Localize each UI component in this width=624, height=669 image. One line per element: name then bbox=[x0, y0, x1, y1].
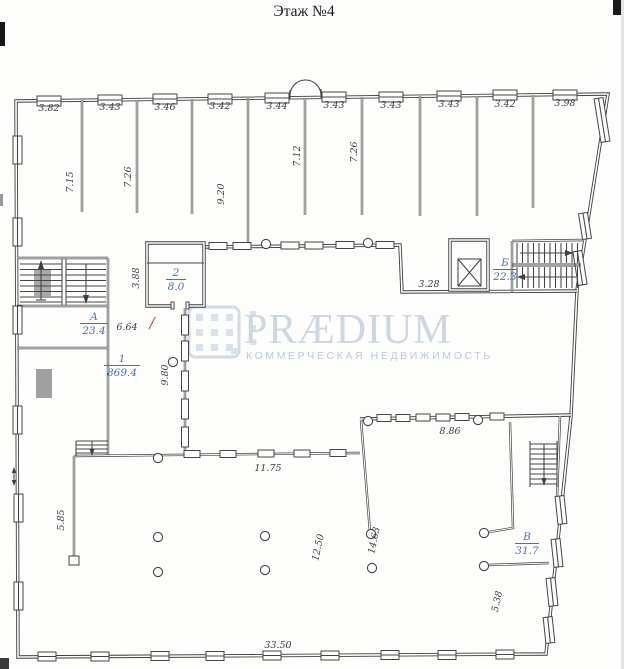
svg-text:23.4: 23.4 bbox=[81, 325, 105, 337]
page-title: Этаж №4 bbox=[273, 3, 334, 20]
building-outline bbox=[16, 80, 608, 657]
dim-depth-4: 7.26 bbox=[349, 141, 360, 162]
dim-west-hall-depth: 9.80 bbox=[160, 364, 171, 385]
dimension-labels: 3.82 3.43 3.46 3.42 3.44 3.43 3.43 3.43 … bbox=[12, 98, 576, 651]
dim-open-span-a: 12.50 bbox=[310, 533, 326, 562]
watermark-praedium: PRÆDIUM КОММЕРЧЕСКАЯ НЕДВИЖИМОСТЬ bbox=[189, 307, 493, 362]
bottom-wall-windows bbox=[38, 650, 514, 661]
dim-top-3: 3.42 bbox=[209, 101, 230, 112]
top-wall-arc bbox=[290, 80, 321, 96]
room-area-labels: 1 869.4 2 8.0 А 23.4 Б 22.3 В 31.7 / bbox=[80, 257, 539, 557]
dim-top-7: 3.43 bbox=[438, 99, 459, 110]
svg-text:31.7: 31.7 bbox=[515, 545, 539, 557]
floor-plan-svg: PRÆDIUM КОММЕРЧЕСКАЯ НЕДВИЖИМОСТЬ bbox=[0, 0, 624, 669]
dim-closet-width: 3.88 bbox=[131, 267, 142, 288]
dim-south-wall: 11.75 bbox=[254, 463, 281, 474]
wall-pier bbox=[34, 270, 51, 296]
dim-top-8: 3.42 bbox=[494, 99, 515, 110]
svg-text:8.0: 8.0 bbox=[168, 281, 185, 293]
room-label-2: 2 8.0 bbox=[166, 267, 186, 293]
red-check-mark: / bbox=[147, 314, 156, 332]
svg-text:1: 1 bbox=[119, 353, 126, 365]
dim-top-5: 3.43 bbox=[323, 100, 344, 111]
room-label-a: А 23.4 bbox=[80, 311, 108, 337]
top-rooms-partitions bbox=[82, 95, 533, 247]
windows bbox=[13, 90, 610, 661]
dim-top-0: 3.82 bbox=[38, 103, 59, 114]
svg-text:2: 2 bbox=[172, 267, 180, 279]
wall-end-cap bbox=[69, 556, 79, 565]
dim-depth-3: 7.12 bbox=[292, 145, 303, 166]
dim-depth-2: 9.20 bbox=[216, 183, 227, 204]
dim-bottom-total: 33.50 bbox=[264, 640, 291, 651]
dim-lift-span: 3.28 bbox=[418, 279, 439, 290]
dim-top-2: 3.46 bbox=[154, 102, 175, 113]
svg-text:22.3: 22.3 bbox=[492, 271, 517, 283]
svg-text:В: В bbox=[522, 531, 531, 543]
dim-southeast-side: 5.38 bbox=[490, 590, 505, 613]
stair-stub bbox=[76, 441, 108, 456]
dim-southeast-top: 8.86 bbox=[439, 426, 460, 437]
dim-inner-gap: 6.64 bbox=[116, 322, 137, 333]
wall-pier bbox=[36, 369, 52, 398]
svg-text:Б: Б bbox=[500, 257, 509, 269]
stair-southeast bbox=[530, 441, 557, 487]
room-label-1: 1 869.4 bbox=[104, 353, 140, 379]
watermark-tagline: КОММЕРЧЕСКАЯ НЕДВИЖИМОСТЬ bbox=[246, 350, 493, 362]
dim-top-9: 3.98 bbox=[554, 98, 575, 109]
left-wall-extent-mark bbox=[12, 467, 16, 486]
stairwell-b bbox=[512, 243, 581, 288]
watermark-brand: PRÆDIUM bbox=[244, 307, 452, 353]
room-label-v: В 31.7 bbox=[515, 531, 539, 557]
dim-top-6: 3.43 bbox=[380, 100, 401, 111]
interior-walls bbox=[17, 240, 584, 565]
dim-depth-0: 7.15 bbox=[65, 171, 76, 192]
stairwell-a bbox=[20, 259, 106, 305]
svg-text:А: А bbox=[89, 311, 98, 323]
west-hall-windows bbox=[182, 315, 189, 447]
dim-top-1: 3.43 bbox=[99, 102, 120, 113]
svg-text:869.4: 869.4 bbox=[107, 367, 137, 379]
elevator-shaft bbox=[450, 240, 488, 290]
dim-top-4: 3.44 bbox=[266, 101, 287, 112]
scanned-floor-plan-page: PRÆDIUM КОММЕРЧЕСКАЯ НЕДВИЖИМОСТЬ bbox=[0, 0, 624, 669]
dim-depth-1: 7.26 bbox=[123, 166, 134, 187]
room-label-b: Б 22.3 bbox=[492, 257, 517, 283]
dim-left-lower: 5.85 bbox=[56, 509, 67, 530]
